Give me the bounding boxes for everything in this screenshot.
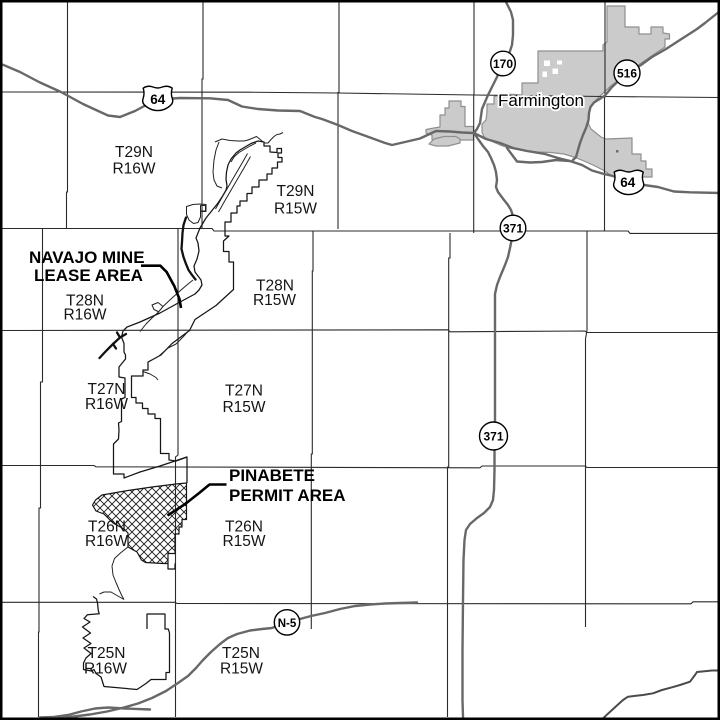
svg-text:R15W: R15W: [222, 533, 265, 550]
svg-text:T25N: T25N: [222, 645, 260, 662]
svg-text:T29N: T29N: [115, 144, 153, 161]
svg-text:64: 64: [150, 92, 166, 107]
svg-text:PINABETE: PINABETE: [229, 466, 315, 485]
svg-text:T25N: T25N: [88, 645, 126, 662]
svg-text:516: 516: [617, 67, 637, 81]
svg-text:LEASE AREA: LEASE AREA: [34, 266, 143, 285]
svg-text:371: 371: [483, 430, 503, 444]
svg-text:64: 64: [620, 175, 636, 190]
svg-text:PERMIT AREA: PERMIT AREA: [229, 486, 346, 505]
svg-text:371: 371: [503, 222, 523, 236]
svg-text:N-5: N-5: [278, 618, 297, 630]
svg-text:T29N: T29N: [277, 183, 315, 200]
svg-text:R16W: R16W: [85, 533, 128, 550]
svg-text:T27N: T27N: [225, 383, 263, 400]
svg-text:R15W: R15W: [220, 661, 263, 678]
svg-text:R15W: R15W: [222, 399, 265, 416]
svg-text:R16W: R16W: [63, 307, 106, 324]
svg-text:Farmington: Farmington: [498, 91, 584, 110]
svg-text:R15W: R15W: [274, 201, 317, 218]
svg-text:NAVAJO MINE: NAVAJO MINE: [29, 248, 145, 267]
svg-text:R15W: R15W: [253, 292, 296, 309]
svg-text:170: 170: [493, 57, 513, 71]
svg-text:R16W: R16W: [112, 161, 155, 178]
svg-text:R16W: R16W: [84, 661, 127, 678]
svg-text:R16W: R16W: [85, 396, 128, 413]
